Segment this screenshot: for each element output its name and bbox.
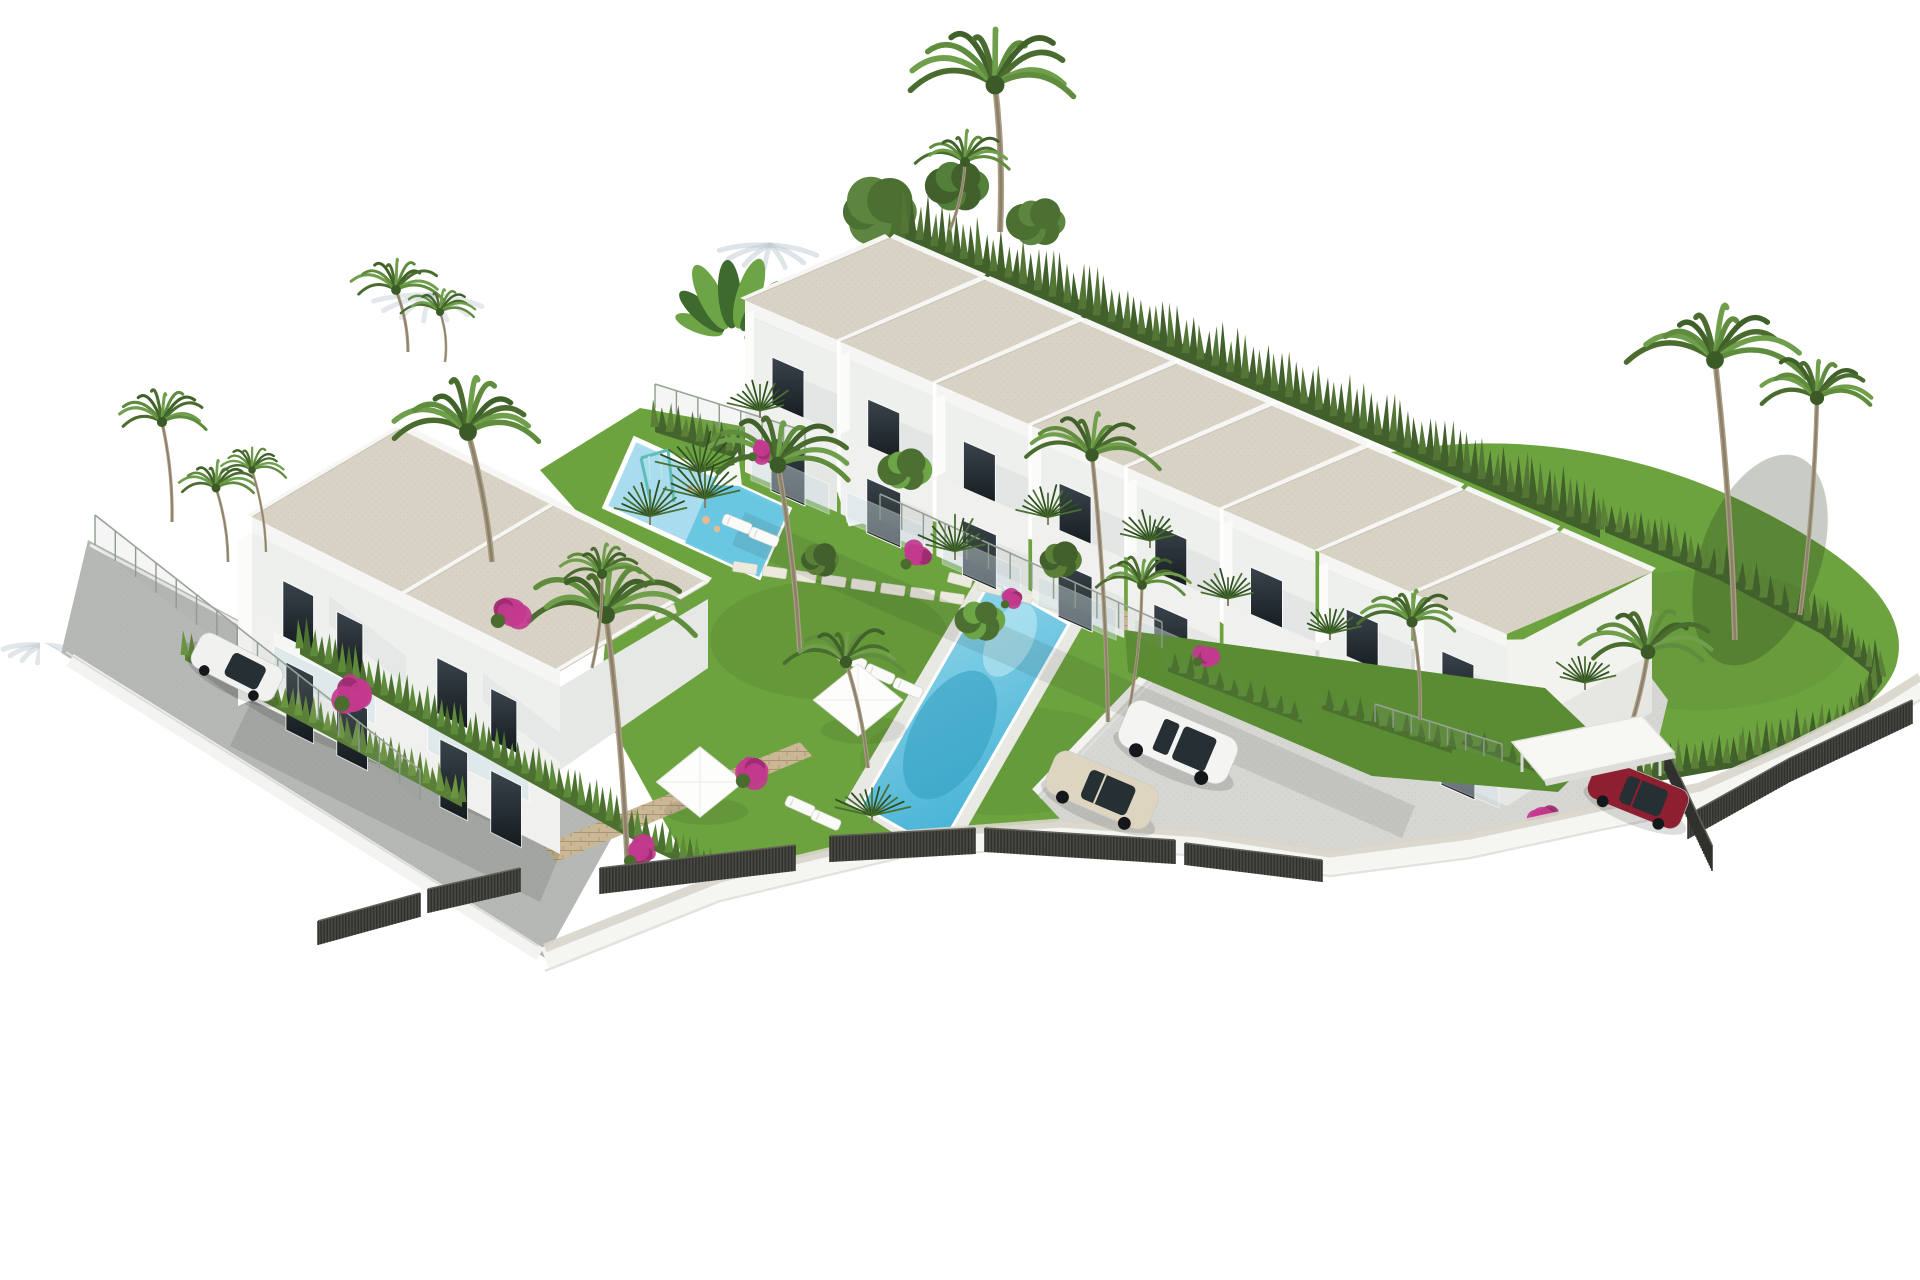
render-page: [0, 0, 1920, 1280]
palm-shadow: [719, 245, 816, 268]
architectural-render: [0, 0, 1920, 1280]
palm-tree: [120, 390, 206, 522]
bush: [1006, 198, 1066, 245]
bush: [925, 162, 989, 211]
